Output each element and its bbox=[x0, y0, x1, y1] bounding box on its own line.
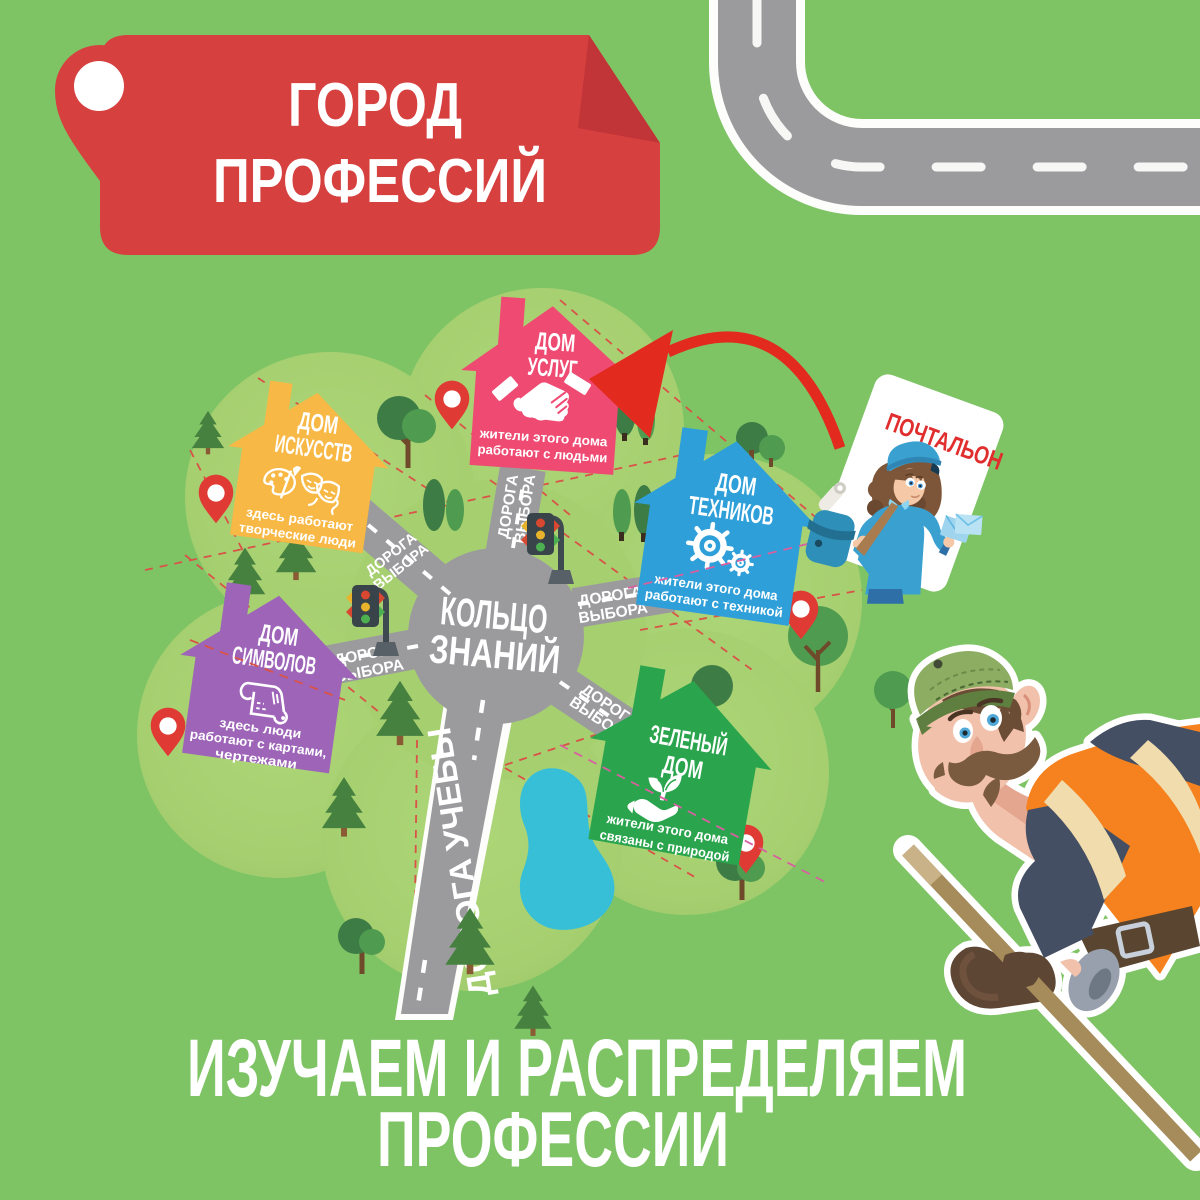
svg-text:ГОРОД: ГОРОД bbox=[288, 71, 462, 140]
svg-text:ПРОФЕССИЙ: ПРОФЕССИЙ bbox=[213, 146, 547, 216]
svg-text:ПРОФЕССИИ: ПРОФЕССИИ bbox=[377, 1095, 729, 1183]
